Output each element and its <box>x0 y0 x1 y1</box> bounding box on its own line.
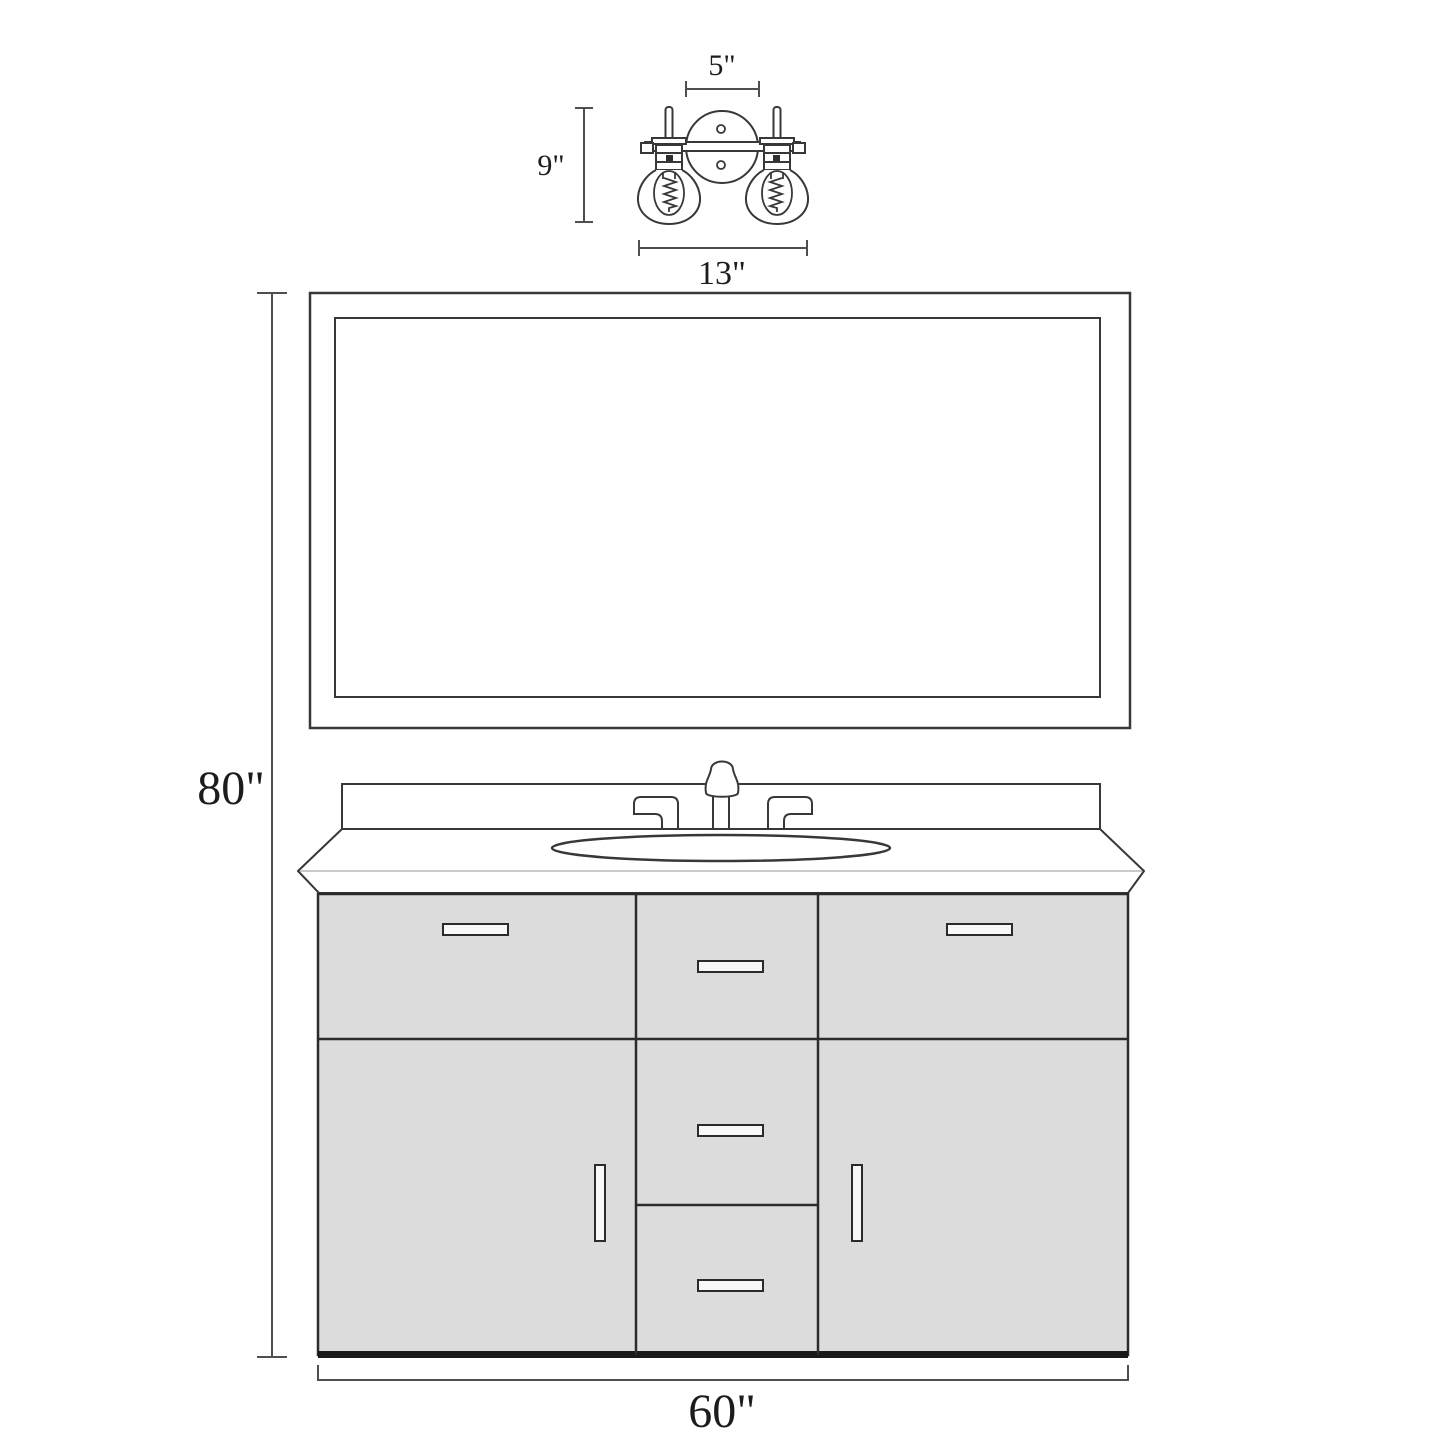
dim-label-13in: 13" <box>698 255 746 292</box>
mirror <box>310 293 1130 728</box>
middle-drawer-3-handle <box>698 1280 763 1291</box>
dimension-sconce-height: 9" <box>537 108 592 222</box>
dimension-sconce-backplate-width: 5" <box>686 49 759 96</box>
dim-label-80in: 80" <box>197 762 265 815</box>
dim-label-9in: 9" <box>537 149 564 182</box>
right-top-drawer-handle <box>947 924 1012 935</box>
light-fixture <box>638 107 808 224</box>
middle-drawer-2-handle <box>698 1125 763 1136</box>
vanity-cabinet <box>318 894 1128 1358</box>
cabinet-base-strip <box>318 1351 1128 1358</box>
dimension-vanity-width: 60" <box>318 1366 1128 1438</box>
mirror-outer-frame <box>310 293 1130 728</box>
mounting-ear <box>641 143 653 153</box>
lamp-canopy <box>652 138 686 144</box>
left-top-drawer-handle <box>443 924 508 935</box>
left-door-handle <box>595 1165 605 1241</box>
dim-label-60in: 60" <box>688 1385 756 1438</box>
dim-label-5in: 5" <box>708 49 735 82</box>
socket-setscrew <box>666 155 673 161</box>
dimension-sconce-width: 13" <box>639 241 807 292</box>
sink-basin <box>552 835 890 861</box>
sconce-lamp-right <box>746 107 808 224</box>
dimension-overall-height: 80" <box>197 293 286 1357</box>
right-door-handle <box>852 1165 862 1241</box>
faucet-spout-head <box>706 762 739 797</box>
middle-drawer-1-handle <box>698 961 763 972</box>
vanity-dimension-diagram: 5" 9" 13" 80" <box>0 0 1445 1445</box>
diagram-svg: 5" 9" 13" 80" <box>0 0 1445 1445</box>
countertop <box>298 762 1144 894</box>
